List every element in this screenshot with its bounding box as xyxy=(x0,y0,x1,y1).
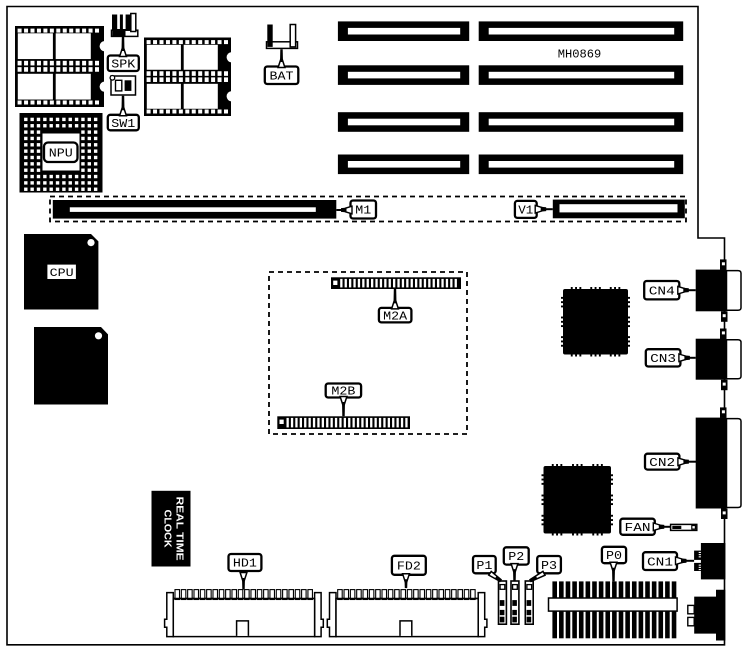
svg-text:HD1: HD1 xyxy=(233,557,257,571)
svg-text:FAN: FAN xyxy=(625,521,651,535)
svg-text:CN1: CN1 xyxy=(647,555,673,569)
svg-text:MH0869: MH0869 xyxy=(558,48,602,62)
svg-text:V1: V1 xyxy=(518,204,533,218)
svg-text:M1: M1 xyxy=(355,204,371,218)
svg-text:CN4: CN4 xyxy=(649,284,675,298)
svg-text:P0: P0 xyxy=(606,549,622,563)
svg-text:CN2: CN2 xyxy=(649,456,675,470)
svg-text:M2A: M2A xyxy=(383,309,408,323)
svg-text:CPU: CPU xyxy=(50,268,74,280)
svg-text:SPK: SPK xyxy=(111,57,136,71)
svg-text:CN3: CN3 xyxy=(650,352,676,366)
svg-text:P1: P1 xyxy=(476,559,492,573)
svg-text:NPU: NPU xyxy=(49,146,73,160)
svg-text:P2: P2 xyxy=(508,550,524,564)
svg-text:FD2: FD2 xyxy=(397,560,421,574)
svg-text:SW1: SW1 xyxy=(111,117,135,131)
svg-text:BAT: BAT xyxy=(270,69,294,83)
